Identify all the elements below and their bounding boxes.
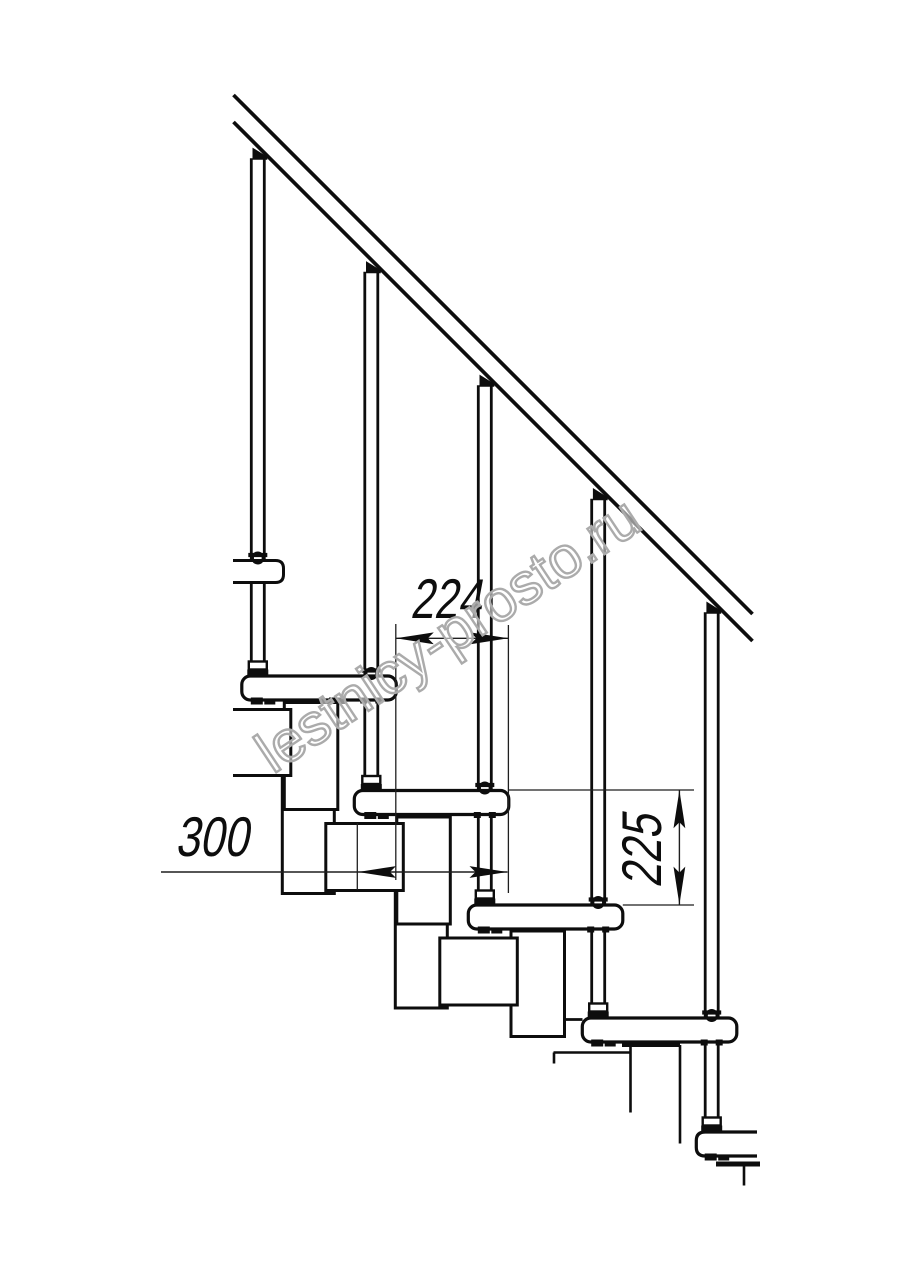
svg-text:225: 225 [610,805,673,890]
svg-text:300: 300 [173,805,258,868]
